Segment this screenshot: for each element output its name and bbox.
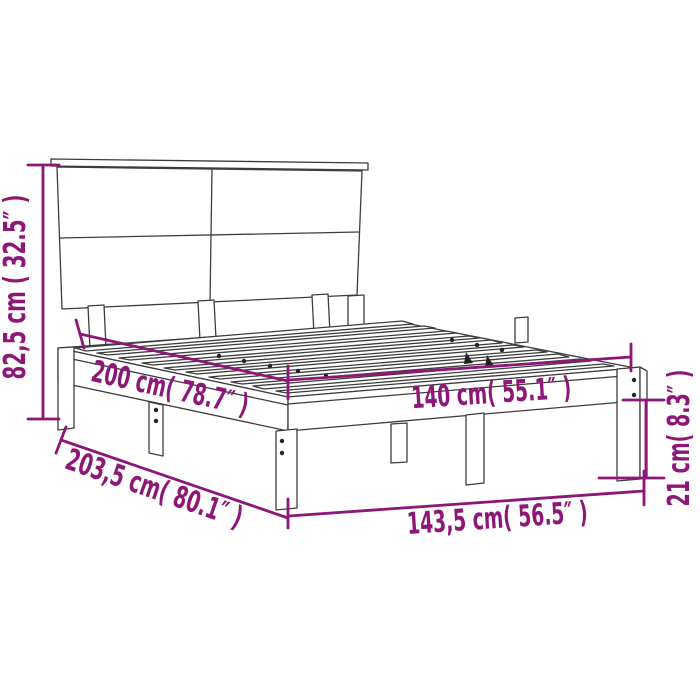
- screw-dot: [475, 343, 479, 347]
- leg-front-middle: [466, 413, 484, 485]
- screw-dot: [217, 354, 221, 358]
- screw-dot: [154, 419, 158, 423]
- dim-label-total-length: 203,5 cm( 80.1″ ): [61, 442, 247, 535]
- screw-dot: [280, 439, 284, 443]
- screw-dot: [632, 393, 636, 397]
- rear-rail-leg-top: [515, 317, 528, 343]
- screw-dot: [268, 364, 272, 368]
- headboard: [51, 159, 368, 349]
- screw-dot: [154, 408, 158, 412]
- headboard-panel: [57, 167, 362, 309]
- screw-dot: [450, 338, 454, 342]
- dim-headboard-height: 82,5 cm ( 32.5″ ): [0, 165, 59, 419]
- dim-label-frame-height: 21 cm( 8.3″ ): [662, 370, 697, 507]
- headboard-post-middle: [198, 300, 216, 341]
- screw-dot: [280, 451, 284, 455]
- bed-frame-dimension-diagram: 82,5 cm ( 32.5″ ) 200 cm( 78.7″ ) 140 cm…: [0, 0, 700, 700]
- leg-back-middle: [391, 423, 407, 463]
- dim-label-headboard-height: 82,5 cm ( 32.5″ ): [0, 195, 33, 380]
- leg-head-left: [58, 347, 74, 430]
- leg-front-left: [276, 429, 297, 510]
- screw-dot: [632, 378, 636, 382]
- screw-dot: [242, 359, 246, 363]
- screw-dot: [500, 348, 504, 352]
- diagram-canvas: 82,5 cm ( 32.5″ ) 200 cm( 78.7″ ) 140 cm…: [0, 0, 700, 700]
- leg-front-right: [617, 367, 640, 481]
- bed-drawing: [51, 159, 647, 510]
- dim-total-length: 203,5 cm( 80.1″ ): [56, 427, 288, 536]
- screw-dot: [296, 369, 300, 373]
- headboard-post-left: [88, 305, 106, 349]
- dim-label-total-width: 143,5 cm( 56.5″ ): [406, 495, 589, 542]
